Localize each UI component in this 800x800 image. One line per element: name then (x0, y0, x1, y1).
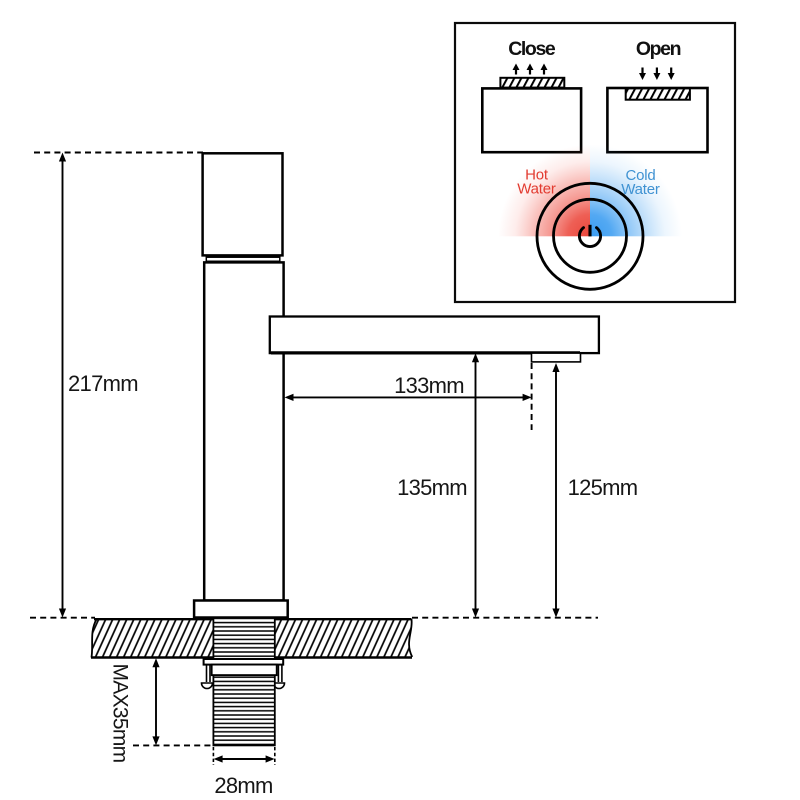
svg-text:133mm: 133mm (394, 373, 464, 398)
svg-text:Close: Close (508, 38, 556, 60)
svg-text:MAX35mm: MAX35mm (109, 664, 132, 763)
svg-text:28mm: 28mm (214, 773, 272, 798)
svg-text:Open: Open (636, 38, 681, 60)
svg-text:125mm: 125mm (568, 475, 638, 500)
svg-text:135mm: 135mm (397, 475, 467, 500)
svg-text:217mm: 217mm (68, 371, 138, 396)
svg-text:Water: Water (517, 181, 556, 198)
svg-text:Water: Water (621, 181, 660, 198)
